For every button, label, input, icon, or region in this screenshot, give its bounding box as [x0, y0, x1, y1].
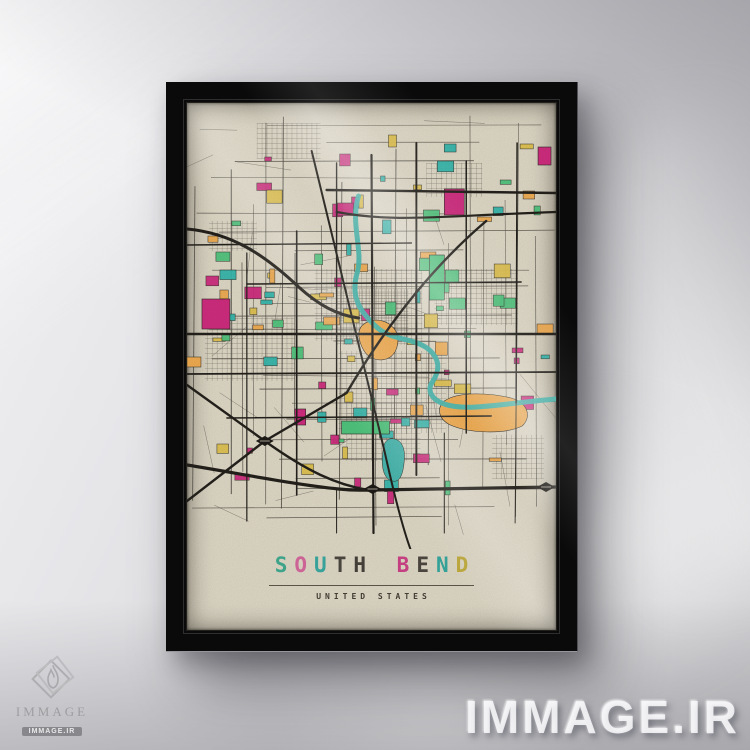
immage-logo-wordmark: IMMAGE: [12, 704, 92, 720]
immage-logo-badge: IMMAGE.IR: [22, 727, 83, 736]
poster-title: SOUTH BEND: [187, 553, 556, 577]
poster-title-block: SOUTH BEND UNITED STATES: [187, 553, 556, 601]
watermark-text: IMMAGE.IR: [465, 690, 740, 744]
flame-icon: [44, 665, 62, 691]
immage-logo: IMMAGE IMMAGE.IR: [12, 659, 92, 738]
poster-frame[interactable]: SOUTH BEND UNITED STATES: [166, 82, 578, 652]
poster-subtitle: UNITED STATES: [187, 592, 556, 601]
city-map: [187, 103, 556, 549]
title-divider: [269, 585, 474, 586]
immage-logo-mark: [31, 659, 73, 701]
poster-paper: SOUTH BEND UNITED STATES: [186, 102, 557, 631]
scene: SOUTH BEND UNITED STATES IMMAGE IM: [0, 0, 750, 750]
